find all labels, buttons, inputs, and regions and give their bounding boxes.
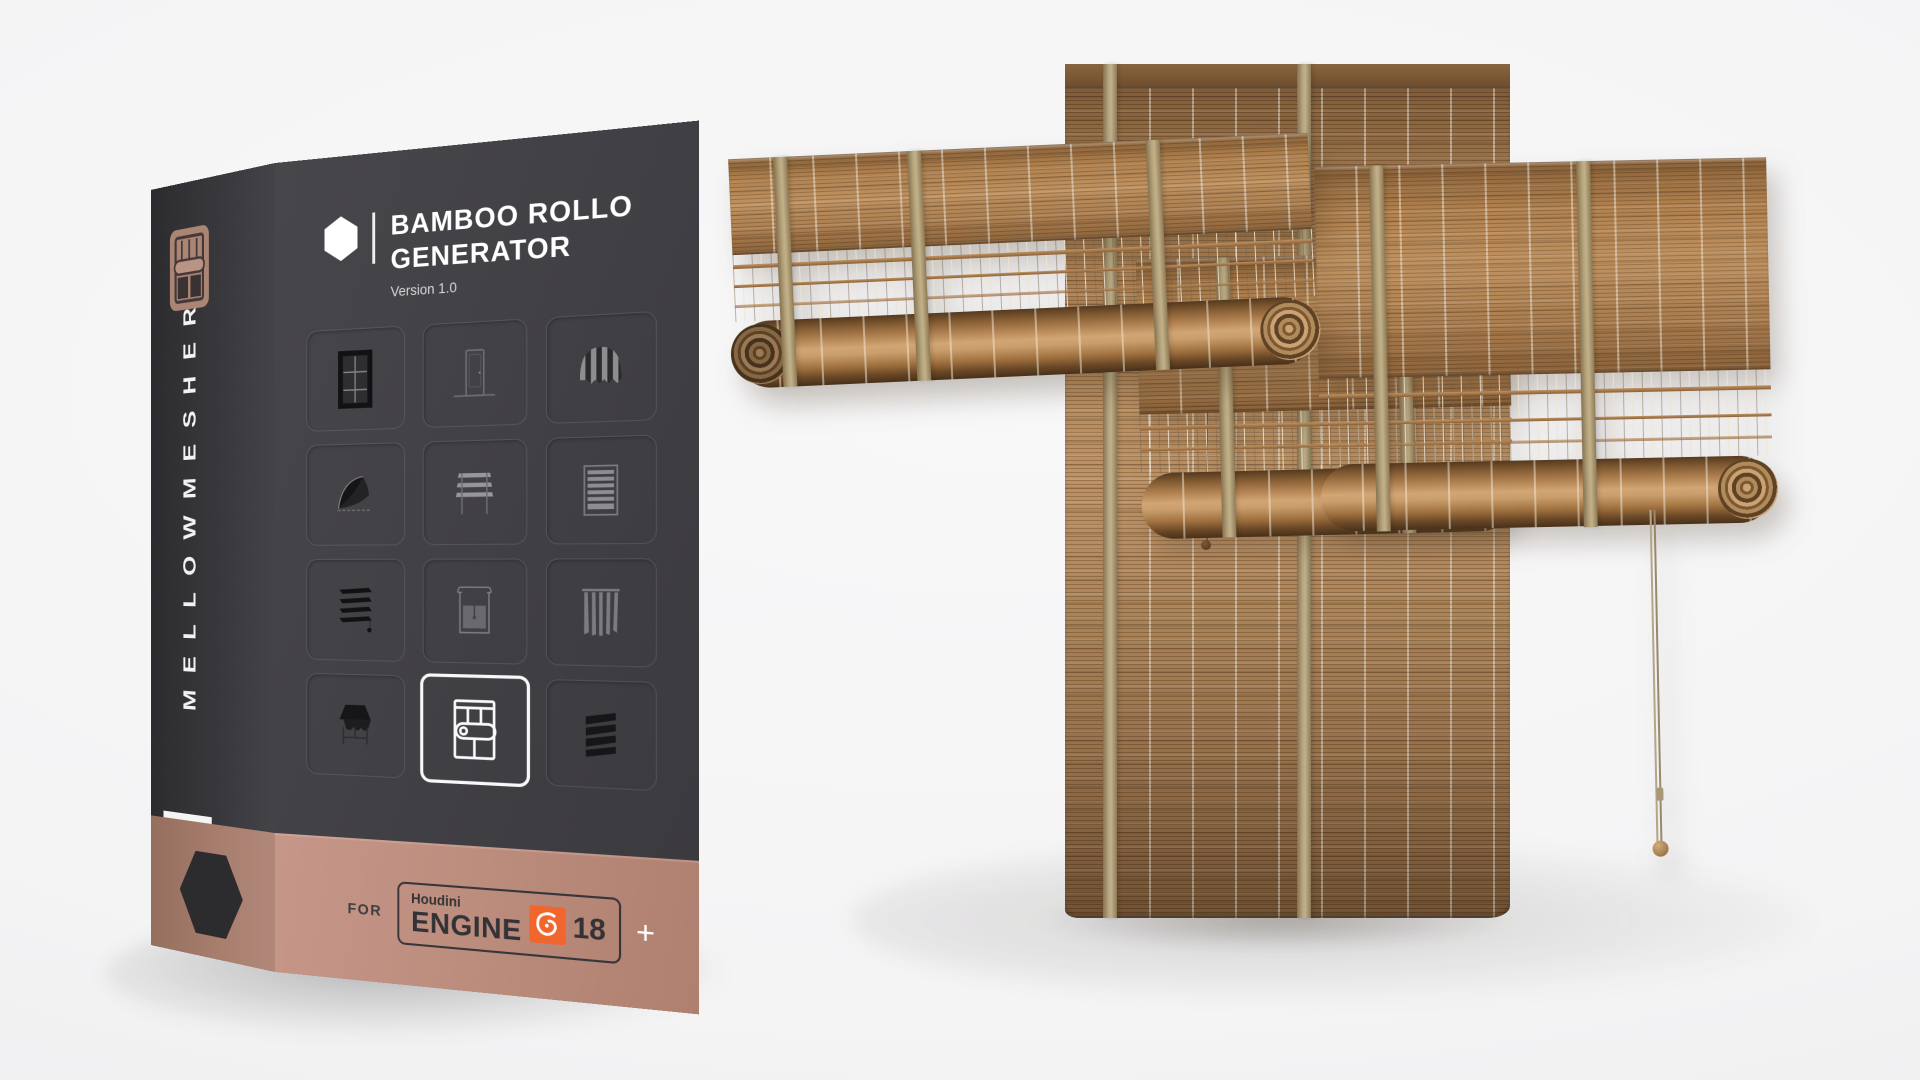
grid-icon-roller-shade [423, 558, 528, 664]
grid-icon-roman-shade [423, 438, 528, 545]
grid-icon-louver-shutters [546, 679, 657, 791]
scene: MELLOWMESHER BAMBOO ROLLO GENERATOR Vers… [0, 0, 1920, 1080]
brand-hexagon-icon [323, 215, 359, 263]
blind-cord-knob [1201, 540, 1211, 550]
brand-name-vertical: MELLOWMESHER [180, 290, 200, 712]
box-spine: MELLOWMESHER [151, 163, 275, 972]
blind-roll-end-cap [1717, 458, 1778, 519]
grid-icon-striped-awning [546, 311, 657, 424]
bamboo-blind-right-rolled [1314, 157, 1774, 532]
grid-icon-bamboo-rollo [420, 673, 530, 787]
logo-row: BAMBOO ROLLO GENERATOR Version 1.0 [323, 188, 633, 304]
engine-version: 18 [573, 910, 606, 947]
cord-ball [1652, 841, 1668, 857]
spine-bottom-band [151, 815, 275, 972]
spine-dash [163, 811, 211, 824]
grid-icon-vertical-blinds [546, 558, 657, 667]
grid-icon-slat-blinds [306, 559, 405, 662]
grid-icon-venetian-blind [546, 435, 657, 545]
grid-icon-storefront-awning [306, 673, 405, 779]
box-front: BAMBOO ROLLO GENERATOR Version 1.0 FOR H… [275, 121, 699, 1015]
engine-label: ENGINE [411, 908, 522, 945]
blind-header-rail [1065, 64, 1510, 88]
blind-type-icon-grid [306, 311, 657, 791]
houdini-engine-wordmark: Houdini ENGINE [411, 892, 522, 945]
grid-icon-door [423, 318, 528, 428]
for-label: FOR [348, 900, 383, 920]
grid-icon-dome-awning [306, 442, 405, 546]
bamboo-blind-left-rolled [728, 133, 1318, 389]
grid-icon-window [306, 325, 405, 432]
title-block: BAMBOO ROLLO GENERATOR Version 1.0 [391, 188, 633, 299]
houdini-band: FOR Houdini ENGINE 18 + [275, 833, 699, 1014]
pull-cord [1649, 510, 1662, 842]
plus-label: + [636, 914, 655, 953]
houdini-engine-badge: Houdini ENGINE 18 [398, 882, 621, 964]
cord-knot [1656, 788, 1663, 801]
houdini-logo-icon [529, 905, 565, 945]
logo-divider [372, 212, 375, 263]
hexagon-logo [180, 848, 243, 943]
